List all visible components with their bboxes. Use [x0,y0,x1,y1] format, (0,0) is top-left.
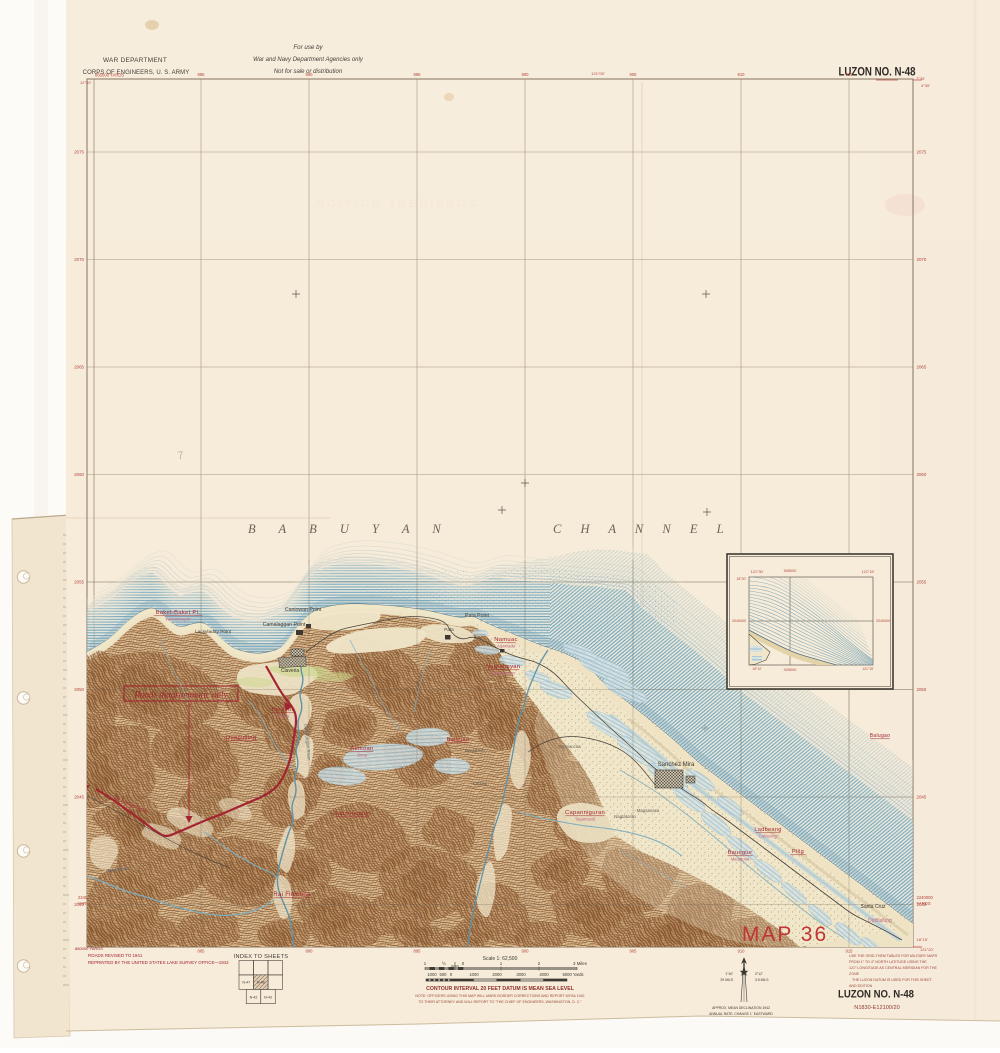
svg-text:TO THEIR ATTORNEY AND WILL REP: TO THEIR ATTORNEY AND WILL REPORT TO "TH… [418,1000,582,1004]
svg-text:12°30': 12°30' [80,80,91,85]
svg-text:121°00': 121°00' [591,71,605,76]
svg-text:121°20': 121°20' [920,947,934,952]
svg-text:2045: 2045 [74,795,84,800]
svg-text:Namuac: Namuac [494,637,517,643]
svg-text:ZONE: ZONE [849,972,860,976]
svg-text:APPROX. MEAN DECLINATION 1942: APPROX. MEAN DECLINATION 1942 [712,1006,770,1010]
svg-text:Claveria: Claveria [281,668,300,674]
svg-text:Rai Fiomena: Rai Fiomena [273,892,311,898]
svg-text:Agamada: Agamada [497,644,516,649]
svg-text:3000: 3000 [516,972,526,977]
svg-text:For use by: For use by [293,44,323,51]
svg-text:Capanniguran: Capanniguran [565,810,605,816]
svg-text:3.5 MILS: 3.5 MILS [755,978,769,982]
svg-text:865000 YARDS: 865000 YARDS [95,73,124,78]
svg-text:910: 910 [738,72,746,77]
svg-text:THE LUZON DATUM IS USED FOR TH: THE LUZON DATUM IS USED FOR THIS SHEET [852,978,933,982]
svg-text:925000: 925000 [784,668,797,672]
svg-text:915: 915 [846,72,854,77]
svg-text:2060: 2060 [917,472,927,477]
svg-text:910: 910 [738,949,746,954]
svg-text:18°10': 18°10' [752,667,762,671]
svg-text:890: 890 [306,949,314,954]
svg-text:29 MILS: 29 MILS [720,978,733,982]
svg-text:895: 895 [414,72,422,77]
svg-text:Dapanniguan: Dapanniguan [333,811,371,817]
svg-text:2040000: 2040000 [732,619,746,623]
svg-text:Nagranayan: Nagranayan [486,664,521,670]
svg-text:5000 Yards: 5000 Yards [562,972,583,977]
svg-text:YARDS: YARDS [917,901,931,906]
svg-text:905: 905 [630,949,638,954]
svg-text:2240000: 2240000 [917,895,934,900]
svg-text:Macabaula: Macabaula [465,748,486,753]
svg-text:Diddialung: Diddialung [868,918,892,924]
svg-text:Pilig: Pilig [792,849,804,855]
svg-text:Lacsyladay Point: Lacsyladay Point [195,629,232,635]
svg-text:Roads diagrammatic only: Roads diagrammatic only [134,690,228,700]
svg-text:Sarangi: Sarangi [473,781,488,786]
svg-text:505000: 505000 [784,569,797,573]
svg-text:INDEX TO SHEETS: INDEX TO SHEETS [234,954,289,960]
svg-text:N1830-E12100/20: N1830-E12100/20 [854,1005,899,1011]
svg-text:LUZON NO. N-48: LUZON NO. N-48 [838,989,914,1001]
svg-text:Camalaggan Point: Camalaggan Point [263,622,306,628]
svg-text:REPRINTED BY THE UNITED STATES: REPRINTED BY THE UNITED STATES LAKE SURV… [88,960,229,965]
svg-text:Tagamasid: Tagamasid [575,817,596,822]
svg-text:N-47: N-47 [242,981,250,985]
svg-text:880000 YARDS: 880000 YARDS [75,946,103,951]
svg-text:Jinaa: Jinaa [357,753,368,758]
svg-text:1°40': 1°40' [725,972,733,976]
svg-text:2075: 2075 [74,150,84,155]
svg-text:885: 885 [198,949,206,954]
svg-text:C H A N N E L: C H A N N E L [553,522,732,536]
svg-text:121°30': 121°30' [751,570,764,574]
svg-text:MAP 36: MAP 36 [742,923,828,946]
svg-text:½: ½ [442,961,446,966]
svg-text:4000: 4000 [539,972,549,977]
svg-text:890: 890 [306,72,314,77]
svg-text:4°30': 4°30' [921,83,930,88]
svg-text:FROM 1° TO 4° NORTH LATITUDE U: FROM 1° TO 4° NORTH LATITUDE USING THE [849,960,927,964]
svg-text:Burayoc: Burayoc [271,707,294,713]
svg-text:2060: 2060 [74,472,84,477]
svg-text:2040000: 2040000 [876,619,890,623]
svg-text:3 Miles: 3 Miles [573,961,588,966]
svg-text:18°15': 18°15' [917,937,928,942]
svg-text:121° LONGITUDE AS CENTRAL MERI: 121° LONGITUDE AS CENTRAL MERIDIAN FOR T… [849,966,938,970]
svg-text:ROADS REVISED TO 1941: ROADS REVISED TO 1941 [88,953,143,958]
svg-text:N-42: N-42 [250,996,258,1000]
svg-text:Casseang: Casseang [759,834,779,839]
svg-text:Wawannayan: Wawannayan [165,617,191,622]
svg-text:Binnay: Binnay [277,714,291,719]
svg-text:2065: 2065 [74,365,84,370]
svg-text:War and Navy Department Agenci: War and Navy Department Agencies only [253,57,364,63]
svg-text:Buananciss: Buananciss [559,744,581,749]
svg-text:2050: 2050 [917,687,927,692]
svg-text:Caniowan Point: Caniowan Point [285,607,322,613]
svg-text:Quaguiling: Quaguiling [226,735,257,741]
svg-text:Pata: Pata [444,627,454,632]
svg-text:900: 900 [522,72,530,77]
svg-text:500: 500 [440,972,448,977]
svg-text:NOTE: OFFICERS USING THIS MAP: NOTE: OFFICERS USING THIS MAP WILL MARK … [415,994,584,998]
svg-text:WAR DEPARTMENT: WAR DEPARTMENT [103,57,167,64]
svg-text:N-48: N-48 [257,981,265,985]
svg-text:1000: 1000 [427,972,437,977]
svg-text:2045: 2045 [917,795,927,800]
svg-text:Magsanaca: Magsanaca [637,808,660,813]
svg-text:2070: 2070 [917,257,927,262]
svg-text:121°15': 121°15' [862,570,875,574]
svg-text:1000: 1000 [469,972,479,977]
svg-text:Baungiur: Baungiur [728,850,753,856]
svg-text:18°20': 18°20' [736,577,746,581]
svg-text:2050: 2050 [74,687,84,692]
svg-text:USE THE GRID-THEM TABLES FOR M: USE THE GRID-THEM TABLES FOR MILITARY MA… [849,954,938,958]
svg-text:Pata Point: Pata Point [465,613,489,619]
svg-text:905: 905 [630,72,638,77]
svg-text:915: 915 [846,949,854,954]
svg-text:2065: 2065 [917,365,927,370]
svg-text:2075: 2075 [917,150,927,155]
svg-text:2055: 2055 [74,580,84,585]
svg-text:895: 895 [414,949,422,954]
svg-text:Matapona: Matapona [731,857,750,862]
svg-text:B A B U Y A N: B A B U Y A N [248,522,451,536]
svg-text:ANNUAL RATE, CHANGE 1´ EASTWAR: ANNUAL RATE, CHANGE 1´ EASTWARD [709,1012,773,1016]
svg-text:121°15': 121°15' [862,667,874,671]
svg-text:900: 900 [522,949,530,954]
svg-text:Ladbeang: Ladbeang [754,827,781,833]
svg-text:Balagao: Balagao [447,737,470,743]
svg-text:N-43: N-43 [264,996,272,1000]
svg-text:2070: 2070 [74,257,84,262]
svg-text:2055: 2055 [917,580,927,585]
svg-text:Baket-Baket Pt.: Baket-Baket Pt. [156,610,201,616]
svg-text:Nagpanayan: Nagpanayan [491,671,515,676]
svg-text:Sanchez Mira: Sanchez Mira [658,762,695,768]
svg-text:Alimoan: Alimoan [350,746,373,752]
svg-text:CONTOUR INTERVAL 20 FEET DATUM: CONTOUR INTERVAL 20 FEET DATUM IS MEAN S… [426,986,575,992]
svg-text:0°12': 0°12' [755,972,763,976]
svg-text:2000: 2000 [492,972,502,977]
svg-text:Balugao: Balugao [870,733,890,739]
svg-text:AND EDITION: AND EDITION [849,984,873,988]
svg-text:885: 885 [198,72,206,77]
svg-text:Santa Cruz: Santa Cruz [860,904,886,910]
svg-text:NOITIGE TNEDIFNOC: NOITIGE TNEDIFNOC [316,198,479,210]
